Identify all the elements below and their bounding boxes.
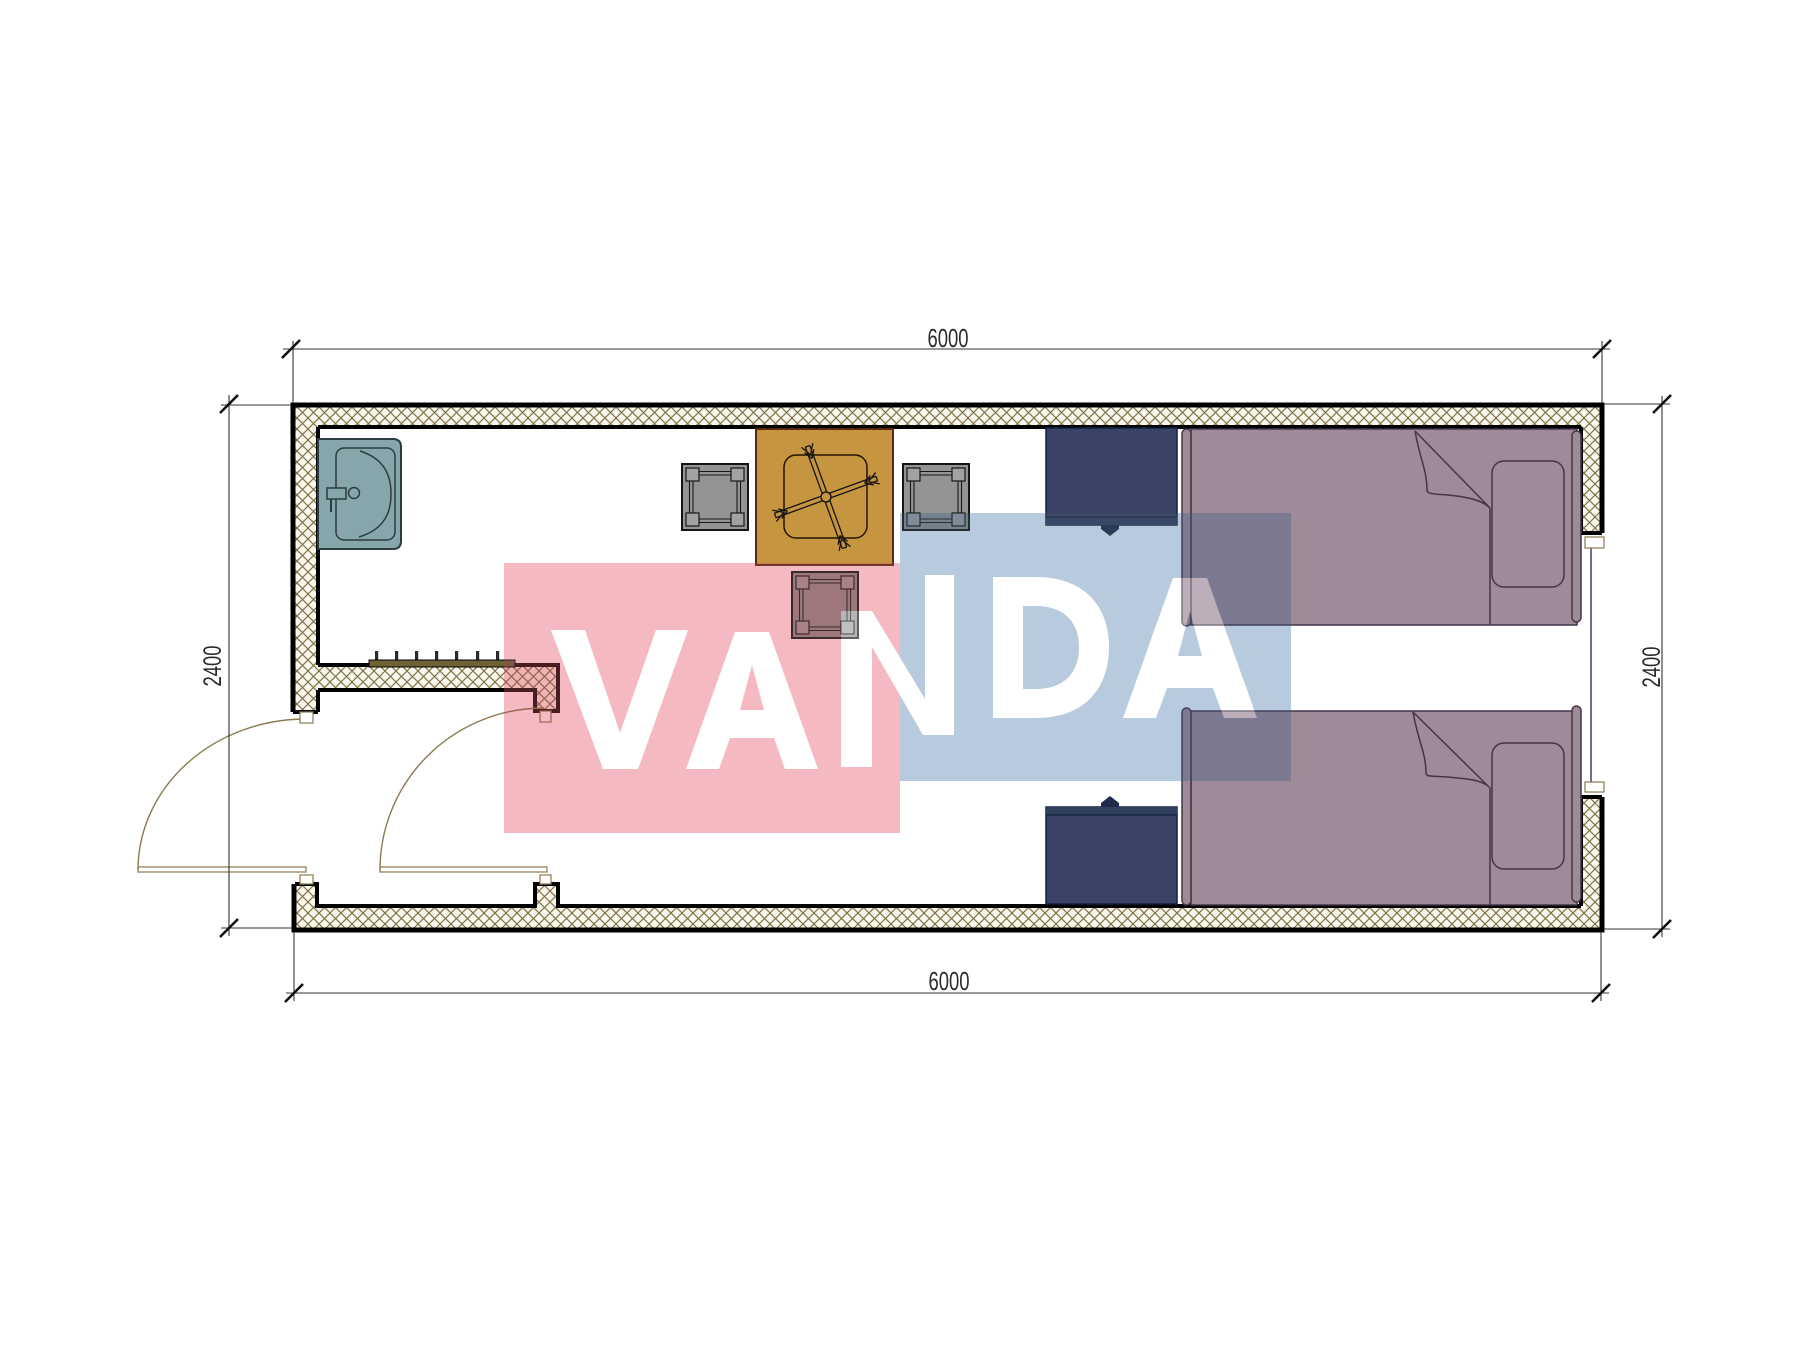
svg-text:6000: 6000 (929, 966, 970, 996)
svg-text:2400: 2400 (199, 646, 227, 687)
svg-text:6000: 6000 (928, 323, 969, 353)
svg-text:2400: 2400 (1638, 647, 1666, 688)
